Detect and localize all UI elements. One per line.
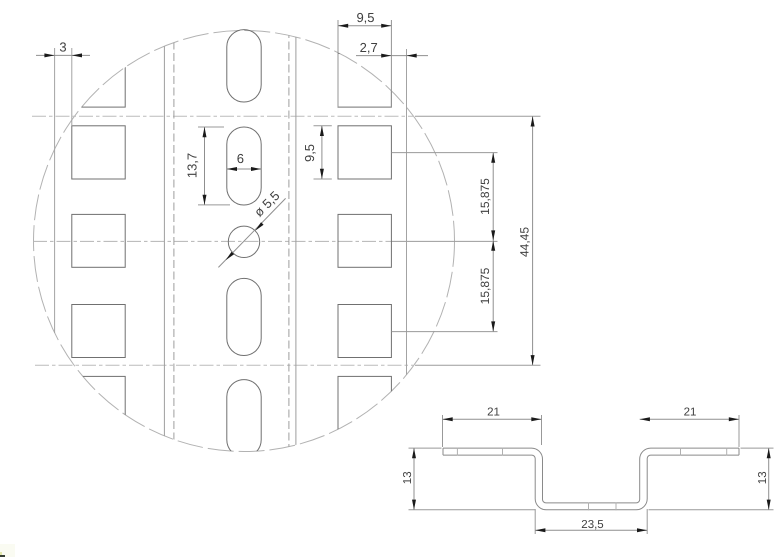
svg-text:9,5: 9,5: [302, 144, 317, 162]
svg-text:6: 6: [237, 151, 244, 166]
svg-text:13,7: 13,7: [185, 153, 200, 178]
svg-text:9,5: 9,5: [356, 10, 374, 25]
svg-text:2,7: 2,7: [360, 40, 378, 55]
svg-text:ø 5,5: ø 5,5: [251, 188, 283, 220]
svg-text:21: 21: [684, 407, 697, 419]
svg-text:23,5: 23,5: [581, 519, 603, 531]
svg-text:13: 13: [757, 471, 769, 484]
svg-text:15,875: 15,875: [478, 178, 492, 215]
svg-text:21: 21: [487, 407, 500, 419]
svg-text:44,45: 44,45: [518, 227, 532, 257]
svg-text:13: 13: [402, 471, 414, 484]
svg-text:3: 3: [59, 40, 66, 55]
svg-text:15,875: 15,875: [478, 267, 492, 304]
